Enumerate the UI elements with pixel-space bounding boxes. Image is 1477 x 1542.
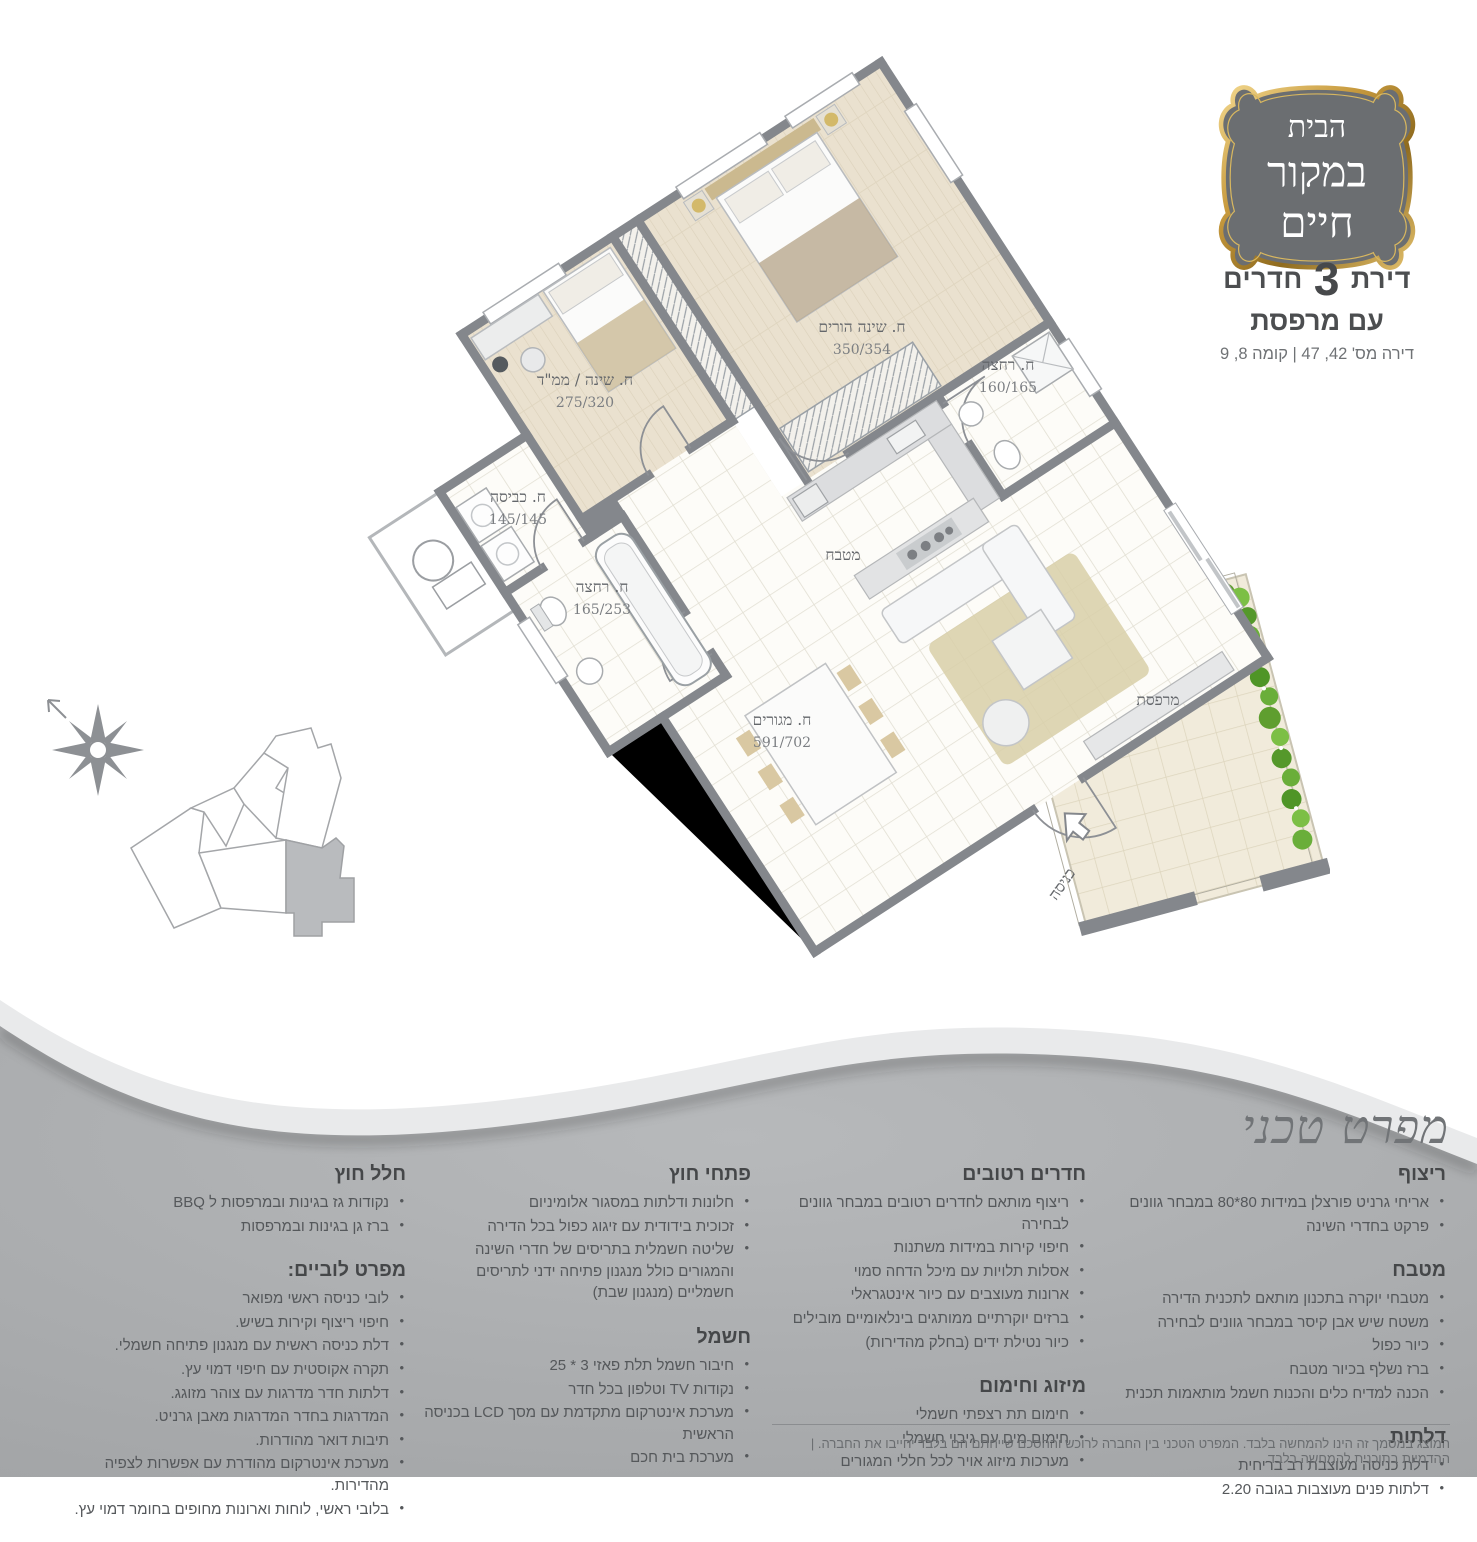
floor-plan: כניסה ח. שינה / ממ"ד 275/320 ח. שינה הור… bbox=[320, 55, 1330, 1040]
spec-item: דלת כניסה ראשית עם מנגנון פתיחה חשמלי. bbox=[69, 1335, 406, 1357]
spec-item: ארונות מעוצבים עם כיור אינטגראלי bbox=[769, 1284, 1086, 1306]
room-dims-bedroom2: 275/320 bbox=[556, 395, 614, 411]
spec-item: ריצוף מותאם לחדרים רטובים במבחר גוונים ל… bbox=[769, 1192, 1086, 1235]
spec-column-flooring-kitchen-doors: ריצוףאריחי גרניט פורצלן במידות 80*80 במב… bbox=[1100, 1163, 1450, 1542]
spec-item: זכוכית בידודית עם זיגוג כפול בכל הדירה bbox=[424, 1216, 751, 1238]
apartment-type-prefix: דירת bbox=[1351, 264, 1411, 294]
spec-item: חלונות ודלתות במסגור אלומיניום bbox=[424, 1192, 751, 1214]
spec-item: כיור כפול bbox=[1104, 1335, 1446, 1357]
spec-item: משטח שיש אבן קיסר במבחר גוונים לבחירה bbox=[1104, 1312, 1446, 1334]
logo-line-2: במקור bbox=[1267, 148, 1367, 197]
building-outline bbox=[131, 728, 354, 936]
spec-section-title: מיזוג וחימום bbox=[769, 1375, 1086, 1398]
spec-item: מערכת אינטרקום מתקדמת עם מסך LCD בכניסה … bbox=[424, 1402, 751, 1445]
spec-item: אריחי גרניט פורצלן במידות 80*80 במבחר גו… bbox=[1104, 1192, 1446, 1214]
highlighted-unit bbox=[286, 838, 354, 936]
spec-item: חיבור חשמל תלת פאזי 3 * 25 bbox=[424, 1355, 751, 1377]
spec-section-list: חלונות ודלתות במסגור אלומיניוםזכוכית ביד… bbox=[424, 1192, 751, 1304]
spec-item: חימום תת רצפתי חשמלי bbox=[769, 1404, 1086, 1426]
apartment-type-title: דירת 3 חדרים bbox=[1197, 252, 1437, 306]
spec-columns: ריצוףאריחי גרניט פורצלן במידות 80*80 במב… bbox=[50, 1163, 1450, 1542]
room-dims-shower: 160/165 bbox=[979, 380, 1037, 396]
spec-item: פרקט בחדרי השינה bbox=[1104, 1216, 1446, 1238]
spec-item: מערכת בית חכם bbox=[424, 1447, 751, 1469]
site-plan bbox=[36, 688, 366, 973]
apartment-rooms-number: 3 bbox=[1311, 253, 1343, 305]
apartment-type-suffix: חדרים bbox=[1223, 264, 1303, 294]
room-dims-laundry: 145/145 bbox=[489, 512, 547, 528]
brand-logo-plaque: הבית במקור חיים bbox=[1211, 72, 1423, 282]
spec-item: תקרה אקוסטית עם חיפוי דמוי עץ. bbox=[69, 1359, 406, 1381]
spec-item: לובי כניסה ראשי מפואר bbox=[69, 1288, 406, 1310]
spec-section-title: חדרים רטובים bbox=[769, 1163, 1086, 1186]
spec-column-openings-electric: פתחי חוץחלונות ודלתות במסגור אלומיניוםזכ… bbox=[420, 1163, 755, 1542]
spec-item: מטבחי יוקרה בתכנון מותאם לתכנית הדירה bbox=[1104, 1288, 1446, 1310]
spec-section-title: מטבח bbox=[1104, 1259, 1446, 1282]
room-label-laundry: ח. כביסה bbox=[490, 488, 546, 506]
spec-item: תיבות דואר מהודרות. bbox=[69, 1430, 406, 1452]
room-dims-parents: 350/354 bbox=[833, 342, 891, 358]
room-label-bedroom2: ח. שינה / ממ"ד bbox=[537, 371, 633, 389]
logo-line-3: חיים bbox=[1280, 198, 1354, 247]
spec-item: כיור נטילת ידים (בחלק מהדירות) bbox=[769, 1332, 1086, 1354]
spec-item: מערכת אינטרקום מהודרת עם אפשרות לצפיה מה… bbox=[69, 1453, 406, 1496]
spec-item: ברז גן בגינות ובמרפסות bbox=[69, 1216, 406, 1238]
spec-section-list: מטבחי יוקרה בתכנון מותאם לתכנית הדירהמשט… bbox=[1104, 1288, 1446, 1404]
room-label-shower: ח. רחצה bbox=[982, 356, 1035, 374]
compass-icon bbox=[48, 700, 144, 796]
disclaimer: המוצג במסמך זה הינו להמחשה בלבד. המפרט ה… bbox=[772, 1424, 1450, 1466]
spec-item: אסלות תלויות עם מיכל הדחה סמוי bbox=[769, 1261, 1086, 1283]
spec-item: דלתות פנים מעוצבות בגובה 2.20 bbox=[1104, 1479, 1446, 1501]
spec-item: הכנה למדיח כלים והכנות חשמל מותאמות תכני… bbox=[1104, 1383, 1446, 1405]
spec-section-title: חשמל bbox=[424, 1326, 751, 1349]
spec-item: נקודות גז בגינות ובמרפסות ל BBQ bbox=[69, 1192, 406, 1214]
spec-column-exterior-lobby: חלל חוץנקודות גז בגינות ובמרפסות ל BBQבר… bbox=[65, 1163, 410, 1542]
room-label-living: ח. מגורים bbox=[753, 711, 812, 729]
spec-section-title: חלל חוץ bbox=[69, 1163, 406, 1186]
room-label-kitchen: מטבח bbox=[825, 546, 860, 564]
spec-section-list: חיבור חשמל תלת פאזי 3 * 25נקודות TV וטלפ… bbox=[424, 1355, 751, 1469]
logo-line-1: הבית bbox=[1288, 110, 1346, 145]
room-dims-bathroom: 165/253 bbox=[573, 602, 631, 618]
spec-item: שליטה חשמלית בתריסים של חדרי השינה והמגו… bbox=[424, 1239, 751, 1304]
spec-section-title: מפרט לוביים: bbox=[69, 1259, 406, 1282]
spec-item: חיפוי ריצוף וקירות בשיש. bbox=[69, 1312, 406, 1334]
spec-item: ברזים יוקרתיים ממותגים בינלאומיים מובילי… bbox=[769, 1308, 1086, 1330]
spec-item: המדרגות בחדר המדרגות מאבן גרניט. bbox=[69, 1406, 406, 1428]
spec-section-heading: מפרט טכני bbox=[1242, 1100, 1449, 1155]
room-dims-living: 591/702 bbox=[753, 735, 811, 751]
spec-section-list: אריחי גרניט פורצלן במידות 80*80 במבחר גו… bbox=[1104, 1192, 1446, 1237]
spec-column-wetrooms-hvac: חדרים רטוביםריצוף מותאם לחדרים רטובים במ… bbox=[765, 1163, 1090, 1542]
brochure-page: { "logo": { "line1": "הבית", "line2": "ב… bbox=[0, 0, 1477, 1477]
apartment-details: דירה מס' 42, 47 | קומה 8, 9 bbox=[1197, 345, 1437, 364]
spec-item: חיפוי קירות במידות משתנות bbox=[769, 1237, 1086, 1259]
spec-section-title: פתחי חוץ bbox=[424, 1163, 751, 1186]
room-label-balcony: מרפסת bbox=[1136, 691, 1179, 709]
north-arrow-icon bbox=[48, 700, 66, 718]
room-label-parents: ח. שינה הורים bbox=[818, 318, 905, 336]
spec-section-list: ריצוף מותאם לחדרים רטובים במבחר גוונים ל… bbox=[769, 1192, 1086, 1353]
spec-item: ברז נשלף בכיור מטבח bbox=[1104, 1359, 1446, 1381]
spec-section-title: ריצוף bbox=[1104, 1163, 1446, 1186]
spec-item: נקודות TV וטלפון בכל חדר bbox=[424, 1379, 751, 1401]
spec-item: דלתות חדר מדרגות עם צוהר מזוגג. bbox=[69, 1383, 406, 1405]
room-label-bathroom: ח. רחצה bbox=[576, 578, 629, 596]
spec-section-list: לובי כניסה ראשי מפוארחיפוי ריצוף וקירות … bbox=[69, 1288, 406, 1520]
spec-section-list: נקודות גז בגינות ובמרפסות ל BBQברז גן בג… bbox=[69, 1192, 406, 1237]
spec-item: בלובי ראשי, לוחות וארונות מחופים בחומר ד… bbox=[69, 1499, 406, 1521]
apartment-info: דירת 3 חדרים עם מרפסת דירה מס' 42, 47 | … bbox=[1197, 252, 1437, 364]
apartment-subtitle: עם מרפסת bbox=[1197, 306, 1437, 337]
